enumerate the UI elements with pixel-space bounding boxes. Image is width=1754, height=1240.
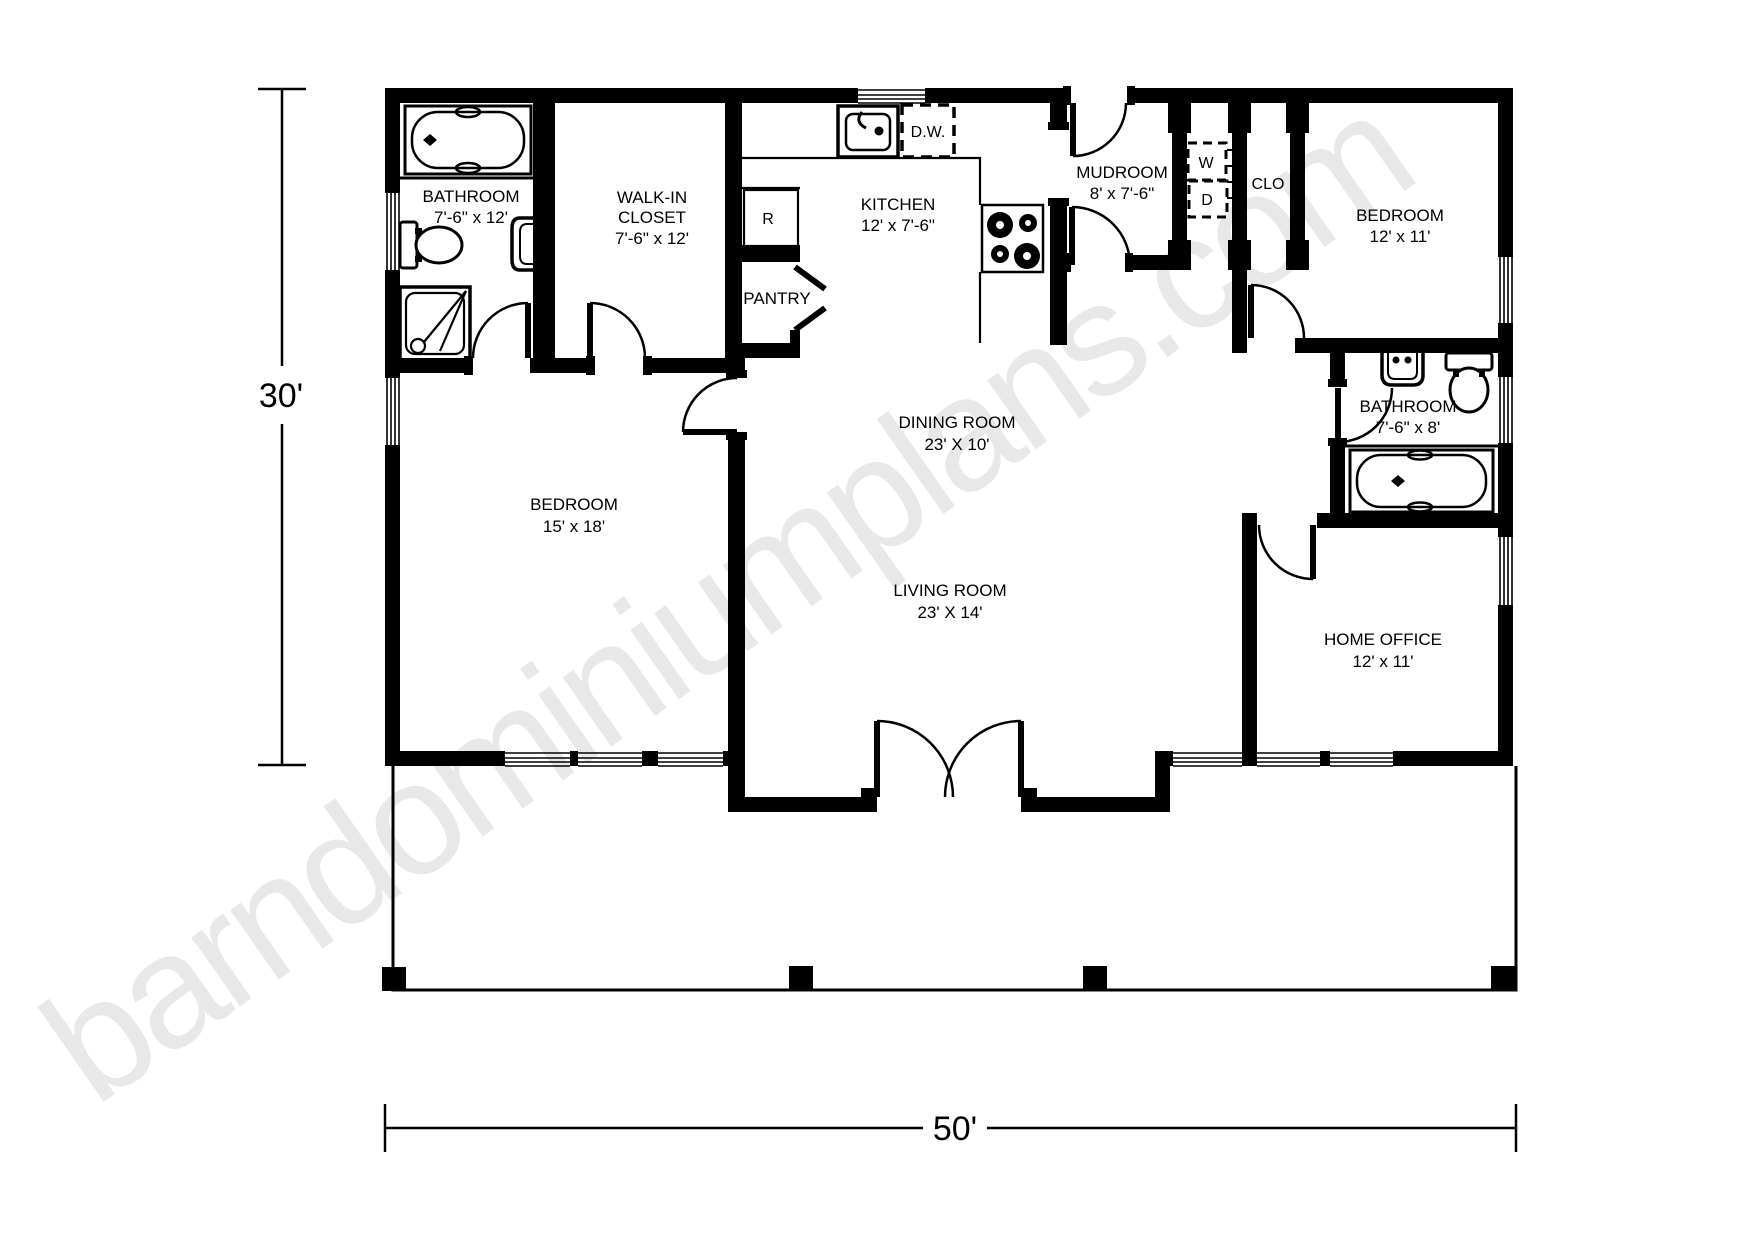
svg-text:BEDROOM: BEDROOM bbox=[1356, 206, 1444, 225]
svg-text:23' X 14': 23' X 14' bbox=[917, 603, 982, 622]
svg-text:HOME OFFICE: HOME OFFICE bbox=[1324, 630, 1442, 649]
porch-post bbox=[1491, 966, 1516, 990]
pantry-label: PANTRY bbox=[743, 289, 810, 308]
mudroom-back-door bbox=[1073, 103, 1126, 156]
wall-endcap bbox=[1168, 103, 1191, 133]
wall-segment bbox=[642, 751, 658, 766]
svg-text:12' x 11': 12' x 11' bbox=[1370, 227, 1431, 246]
door-jamb bbox=[1328, 379, 1347, 387]
svg-text:DINING ROOM: DINING ROOM bbox=[898, 413, 1015, 432]
porch-post bbox=[382, 967, 406, 991]
floor-plan-drawing: barndominiumplans.com bbox=[0, 0, 1754, 1240]
svg-text:BATHROOM: BATHROOM bbox=[1360, 397, 1457, 416]
window-mullion bbox=[570, 751, 578, 766]
wall-segment bbox=[1155, 751, 1173, 766]
wall-endcap bbox=[1228, 240, 1251, 270]
svg-text:7'-6" x 8': 7'-6" x 8' bbox=[1376, 418, 1441, 437]
wall-segment bbox=[1295, 338, 1498, 353]
svg-text:12' x 7'-6": 12' x 7'-6" bbox=[861, 216, 935, 235]
bathtub2-icon bbox=[1345, 446, 1498, 512]
window-kitchen-top bbox=[858, 90, 925, 103]
door-jamb bbox=[1048, 198, 1069, 206]
porch-post bbox=[1083, 966, 1107, 990]
height-dimension bbox=[258, 89, 306, 765]
home-office-door bbox=[1259, 525, 1313, 579]
svg-text:KITCHEN: KITCHEN bbox=[861, 195, 936, 214]
wall-segment bbox=[1498, 443, 1513, 537]
svg-text:BATHROOM: BATHROOM bbox=[423, 187, 520, 206]
front-double-doors bbox=[877, 721, 1021, 797]
wall-endcap bbox=[1286, 103, 1309, 133]
wall-segment bbox=[1133, 88, 1513, 103]
wall-endcap bbox=[1286, 240, 1309, 270]
svg-text:PANTRY: PANTRY bbox=[743, 289, 810, 308]
svg-text:15' x 18': 15' x 18' bbox=[543, 517, 605, 536]
wall-segment bbox=[385, 751, 505, 766]
wall-segment bbox=[385, 445, 400, 751]
porch-post bbox=[789, 966, 813, 990]
svg-text:WALK-IN: WALK-IN bbox=[617, 188, 687, 207]
wall-segment bbox=[725, 343, 800, 358]
washer-label: W bbox=[1198, 155, 1214, 172]
door-jamb bbox=[643, 356, 652, 375]
mudroom-label: MUDROOM 8' x 7'-6" bbox=[1076, 163, 1168, 203]
wall-segment bbox=[1025, 797, 1170, 812]
wall-segment bbox=[385, 103, 400, 193]
bathtub-icon bbox=[400, 106, 533, 178]
svg-text:23' X 10': 23' X 10' bbox=[924, 435, 989, 454]
height-dimension-label: 30' bbox=[259, 377, 303, 415]
floor-plan-page: barndominiumplans.com bbox=[0, 0, 1754, 1240]
svg-text:MUDROOM: MUDROOM bbox=[1076, 163, 1168, 182]
wall-segment bbox=[533, 103, 555, 358]
home-office-label: HOME OFFICE 12' x 11' bbox=[1324, 630, 1442, 671]
shower-icon bbox=[400, 287, 470, 360]
door-jamb bbox=[1048, 122, 1069, 130]
dishwasher-label: D.W. bbox=[911, 124, 946, 141]
door-jamb bbox=[1063, 86, 1071, 105]
closet-label: CLO bbox=[1252, 176, 1285, 193]
window-right-office bbox=[1500, 537, 1512, 605]
wall-segment bbox=[1393, 751, 1513, 766]
kitchen-label: KITCHEN 12' x 7'-6" bbox=[861, 195, 936, 235]
svg-text:8' x 7'-6": 8' x 7'-6" bbox=[1090, 184, 1155, 203]
toilet-icon bbox=[400, 222, 462, 268]
wall-segment bbox=[790, 330, 800, 343]
bedroom1-label: BEDROOM 15' x 18' bbox=[530, 495, 618, 536]
svg-text:7'-6" x 12': 7'-6" x 12' bbox=[434, 208, 508, 227]
wall-segment bbox=[1050, 203, 1067, 345]
wall-segment bbox=[1498, 323, 1513, 377]
door-jamb bbox=[586, 356, 595, 375]
living-room-label: LIVING ROOM 23' X 14' bbox=[893, 581, 1006, 622]
refrigerator-label: R bbox=[762, 211, 774, 228]
wall-segment bbox=[385, 88, 858, 103]
window-left-bathroom bbox=[387, 193, 399, 270]
wall-segment bbox=[728, 797, 873, 812]
svg-text:LIVING ROOM: LIVING ROOM bbox=[893, 581, 1006, 600]
dryer-label: D bbox=[1201, 192, 1213, 209]
wall-segment bbox=[1232, 270, 1247, 353]
window-front-nook bbox=[1173, 753, 1242, 766]
wall-endcap bbox=[1228, 103, 1251, 133]
wall-segment bbox=[1242, 513, 1257, 766]
width-dimension-label: 50' bbox=[933, 1110, 977, 1148]
wall-segment bbox=[1317, 513, 1498, 528]
bathroom1-label: BATHROOM 7'-6" x 12' bbox=[423, 187, 520, 227]
svg-text:7'-6" x 12': 7'-6" x 12' bbox=[615, 229, 689, 248]
bathroom2-label: BATHROOM 7'-6" x 8' bbox=[1360, 397, 1457, 437]
bedroom1-door bbox=[683, 378, 737, 432]
stove-icon bbox=[982, 205, 1043, 272]
walkin-closet-door bbox=[590, 303, 645, 358]
wall-endcap bbox=[1168, 240, 1191, 270]
bathroom1-door bbox=[473, 303, 528, 358]
wall-segment bbox=[530, 358, 588, 373]
window-left-bedroom bbox=[387, 378, 399, 445]
window-right-bathroom2 bbox=[1500, 377, 1512, 443]
kitchen-sink-icon bbox=[838, 106, 898, 157]
svg-text:BEDROOM: BEDROOM bbox=[530, 495, 618, 514]
wall-segment bbox=[742, 245, 800, 262]
svg-text:CLOSET: CLOSET bbox=[618, 208, 686, 227]
wall-segment bbox=[725, 103, 742, 343]
wall-segment bbox=[1498, 103, 1513, 257]
window-right-bedroom2 bbox=[1500, 257, 1512, 323]
walkin-closet-label: WALK-IN CLOSET 7'-6" x 12' bbox=[615, 188, 689, 248]
sink2-icon bbox=[1382, 353, 1423, 385]
window-mullion bbox=[1320, 751, 1330, 766]
wall-segment bbox=[728, 432, 745, 751]
door-jamb bbox=[1127, 86, 1135, 105]
window-front-bedroom-single bbox=[658, 753, 723, 766]
wall-segment bbox=[925, 88, 1067, 103]
wall-segment bbox=[1498, 605, 1513, 751]
svg-text:12' x 11': 12' x 11' bbox=[1353, 652, 1414, 671]
